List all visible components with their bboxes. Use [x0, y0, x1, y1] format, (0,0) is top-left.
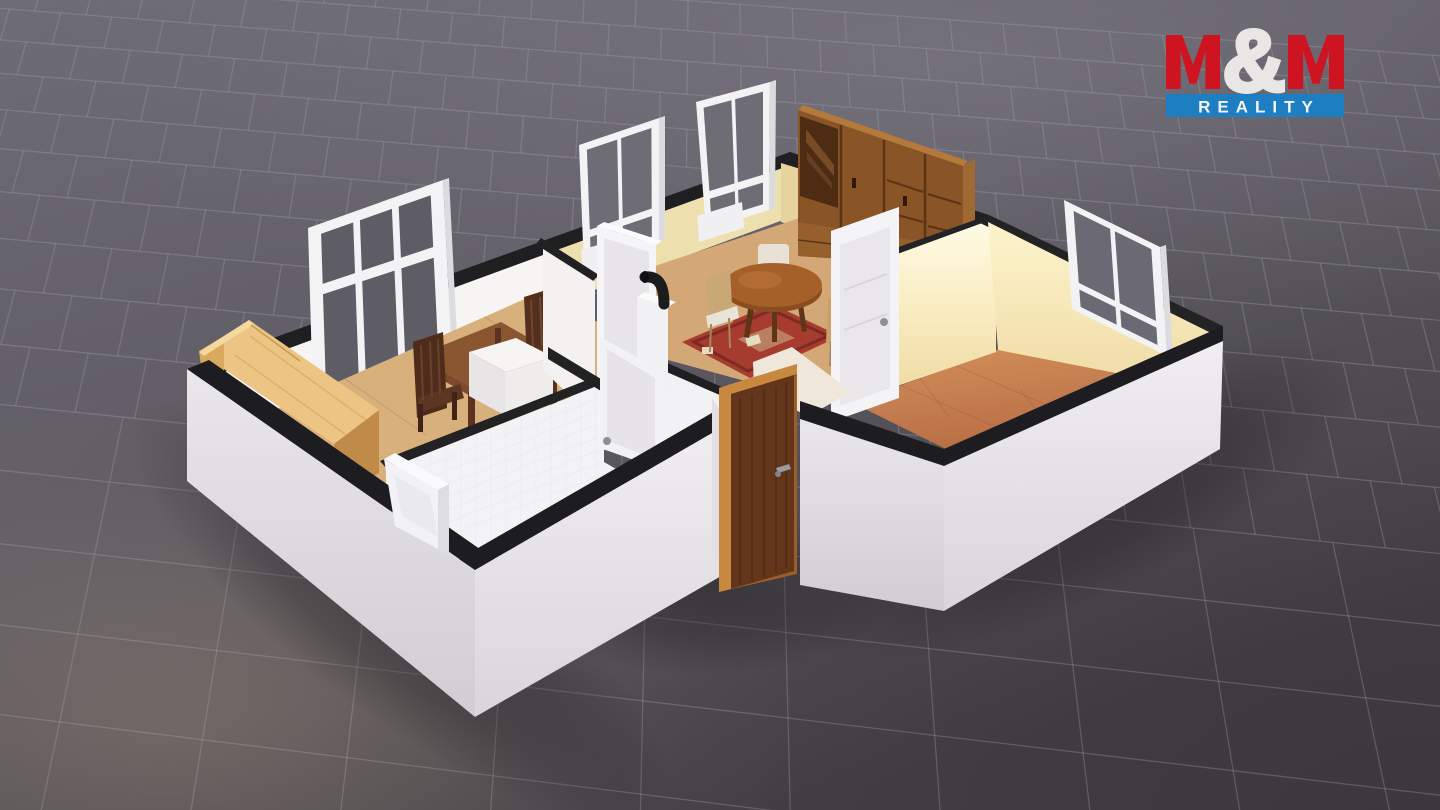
svg-text:REALITY: REALITY [1198, 98, 1320, 117]
